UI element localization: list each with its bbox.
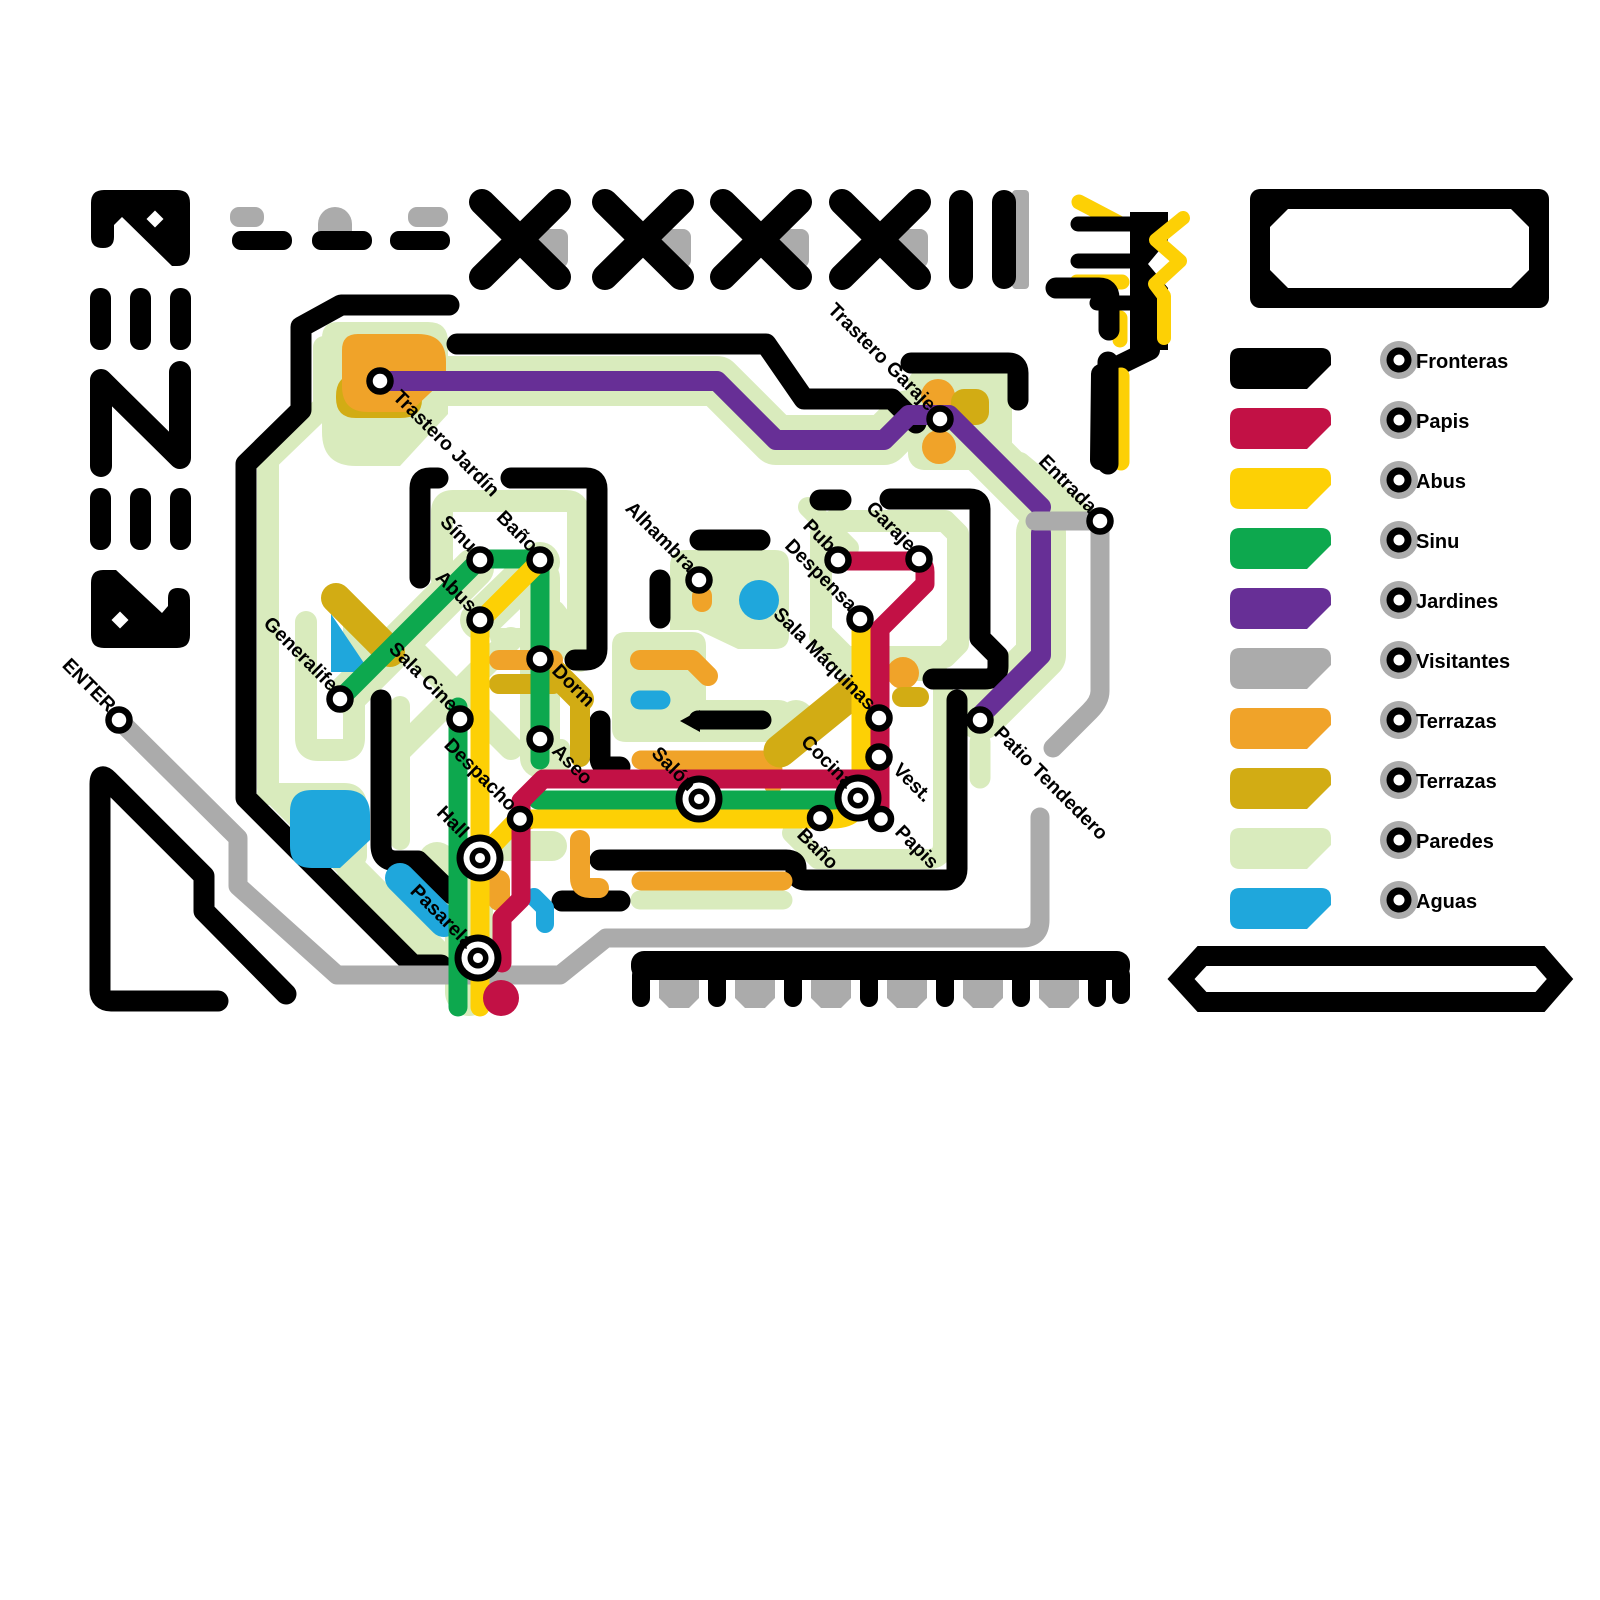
svg-text:Abus: Abus	[1416, 471, 1466, 493]
svg-text:Paredes: Paredes	[1416, 831, 1494, 853]
svg-text:Aguas: Aguas	[1416, 891, 1477, 913]
svg-text:Terrazas: Terrazas	[1416, 711, 1497, 733]
svg-text:Jardines: Jardines	[1416, 591, 1498, 613]
svg-text:Visitantes: Visitantes	[1416, 651, 1510, 673]
svg-text:Papis: Papis	[1416, 411, 1469, 433]
svg-text:Terrazas: Terrazas	[1416, 771, 1497, 793]
svg-text:Fronteras: Fronteras	[1416, 351, 1508, 373]
svg-text:Sinu: Sinu	[1416, 531, 1459, 553]
